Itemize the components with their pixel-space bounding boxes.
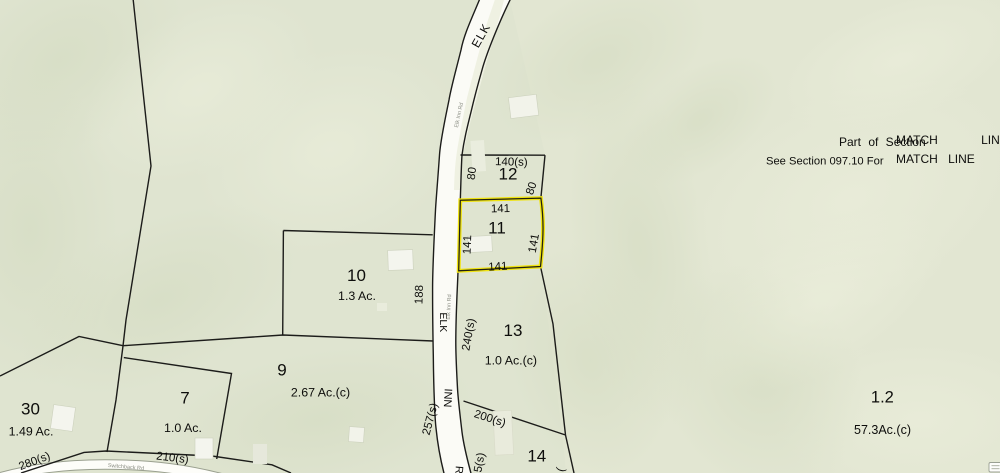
svg-text:R: R bbox=[452, 465, 465, 473]
svg-text:MATCH LINE: MATCH LINE bbox=[896, 133, 1000, 147]
svg-text:1.3 Ac.: 1.3 Ac. bbox=[338, 289, 376, 303]
svg-text:141: 141 bbox=[462, 235, 475, 255]
svg-text:INN: INN bbox=[441, 388, 454, 408]
svg-text:7: 7 bbox=[180, 389, 189, 408]
svg-text:13: 13 bbox=[504, 321, 523, 340]
svg-text:See Section 097.10 For: See Section 097.10 For bbox=[766, 156, 884, 168]
svg-text:MATCH LINE: MATCH LINE bbox=[896, 152, 975, 166]
svg-text:141: 141 bbox=[488, 261, 508, 274]
svg-text:140(s): 140(s) bbox=[495, 156, 528, 169]
svg-text:1.0 Ac.: 1.0 Ac. bbox=[164, 421, 202, 435]
svg-text:14: 14 bbox=[527, 447, 546, 466]
svg-text:11: 11 bbox=[488, 218, 506, 237]
svg-text:9: 9 bbox=[277, 361, 286, 380]
svg-text:30: 30 bbox=[21, 400, 40, 419]
svg-text:1.49 Ac.: 1.49 Ac. bbox=[9, 425, 54, 439]
svg-text:10: 10 bbox=[347, 266, 366, 285]
svg-text:1.2: 1.2 bbox=[871, 389, 894, 407]
svg-text:57.3Ac.(c): 57.3Ac.(c) bbox=[854, 423, 911, 437]
svg-text:1.0 Ac.(c): 1.0 Ac.(c) bbox=[485, 353, 537, 367]
svg-text:141: 141 bbox=[491, 203, 510, 215]
svg-text:2.67 Ac.(c): 2.67 Ac.(c) bbox=[291, 386, 350, 400]
svg-text:188: 188 bbox=[413, 285, 426, 305]
svg-text:80: 80 bbox=[466, 166, 479, 180]
